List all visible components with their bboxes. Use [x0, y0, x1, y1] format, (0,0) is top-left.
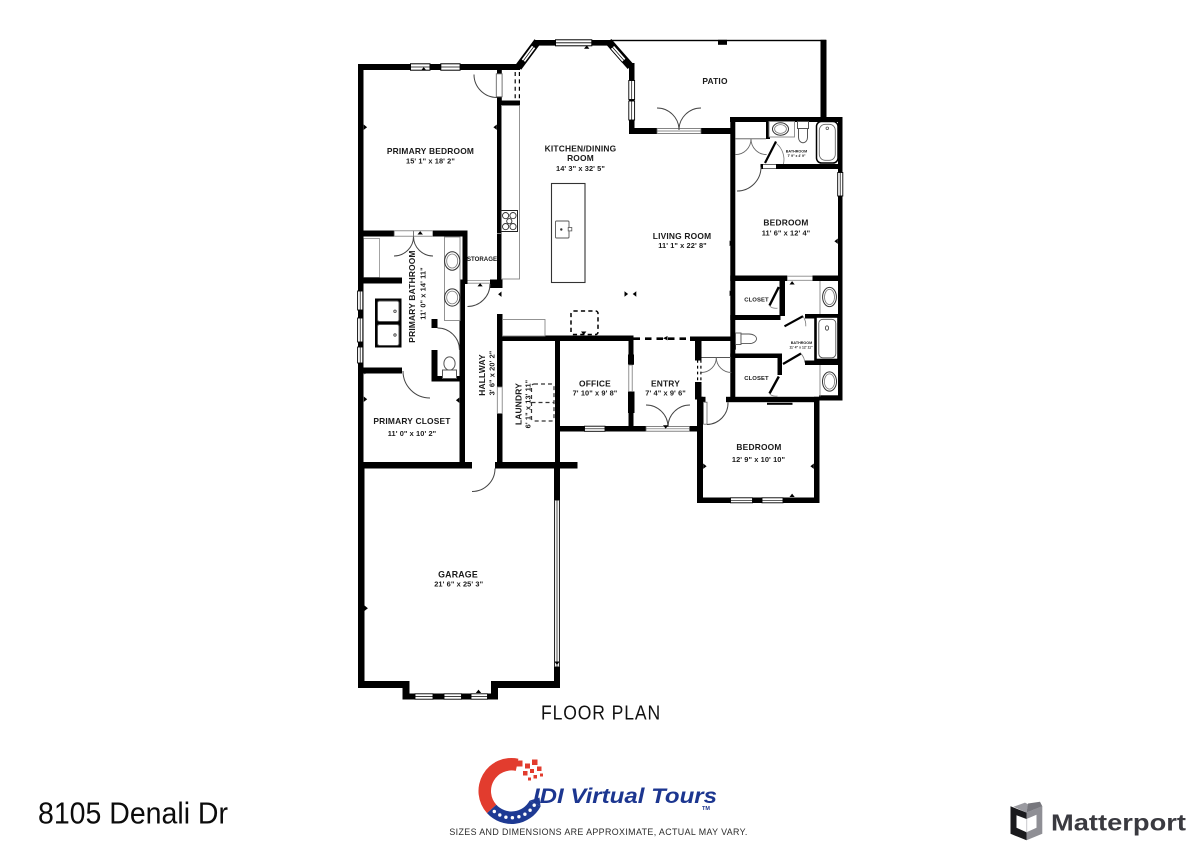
svg-text:OFFICE: OFFICE: [579, 378, 611, 388]
svg-text:Matterport: Matterport: [1051, 810, 1186, 836]
svg-text:12' 9" x 10' 10": 12' 9" x 10' 10": [732, 455, 786, 464]
svg-text:11' 4" x 12' 11": 11' 4" x 12' 11": [789, 346, 813, 350]
svg-text:PRIMARY CLOSET: PRIMARY CLOSET: [373, 416, 451, 426]
svg-text:KITCHEN/DINING: KITCHEN/DINING: [545, 144, 617, 154]
svg-text:7' 9" x 4' 9": 7' 9" x 4' 9": [787, 154, 805, 158]
svg-text:STORAGE: STORAGE: [467, 256, 497, 263]
svg-text:6' 1" x 13' 11": 6' 1" x 13' 11": [524, 379, 533, 428]
svg-text:11' 0" x 10' 2": 11' 0" x 10' 2": [388, 429, 437, 438]
svg-text:LAUNDRY: LAUNDRY: [514, 383, 524, 425]
svg-text:BATHROOM: BATHROOM: [786, 150, 807, 154]
svg-text:BATHROOM: BATHROOM: [791, 341, 812, 345]
svg-text:11' 1" x 22' 8": 11' 1" x 22' 8": [658, 241, 707, 250]
svg-text:11' 6" x 12' 4": 11' 6" x 12' 4": [762, 229, 811, 238]
svg-text:LIVING ROOM: LIVING ROOM: [653, 231, 712, 241]
svg-text:GARAGE: GARAGE: [438, 570, 478, 580]
svg-text:ROOM: ROOM: [567, 153, 594, 163]
svg-text:8105 Denali Dr: 8105 Denali Dr: [38, 796, 228, 831]
svg-text:BEDROOM: BEDROOM: [736, 442, 781, 452]
svg-text:3' 6" x 20' 2": 3' 6" x 20' 2": [488, 350, 497, 395]
svg-text:7' 10" x 9' 8": 7' 10" x 9' 8": [573, 389, 618, 398]
svg-text:21' 6" x 25' 3": 21' 6" x 25' 3": [434, 580, 483, 589]
svg-text:PATIO: PATIO: [702, 76, 728, 86]
svg-text:PRIMARY BEDROOM: PRIMARY BEDROOM: [387, 146, 474, 156]
svg-text:BEDROOM: BEDROOM: [763, 218, 808, 228]
svg-text:SIZES AND DIMENSIONS ARE APPRO: SIZES AND DIMENSIONS ARE APPROXIMATE, AC…: [449, 827, 747, 837]
svg-text:7' 4" x 9' 6": 7' 4" x 9' 6": [645, 388, 686, 397]
svg-text:FLOOR PLAN: FLOOR PLAN: [541, 703, 661, 725]
svg-text:TM: TM: [702, 806, 710, 812]
svg-text:15' 1" x 18' 2": 15' 1" x 18' 2": [406, 157, 455, 166]
svg-text:IDI Virtual Tours: IDI Virtual Tours: [533, 784, 717, 808]
svg-text:HALLWAY: HALLWAY: [477, 354, 487, 396]
svg-text:CLOSET: CLOSET: [744, 376, 769, 382]
svg-text:ENTRY: ENTRY: [651, 379, 680, 389]
svg-text:PRIMARY BATHROOM: PRIMARY BATHROOM: [407, 250, 417, 342]
svg-text:11' 0" x 14' 11": 11' 0" x 14' 11": [419, 267, 428, 320]
svg-text:CLOSET: CLOSET: [744, 298, 769, 304]
svg-text:14' 3" x 32' 5": 14' 3" x 32' 5": [556, 164, 605, 173]
